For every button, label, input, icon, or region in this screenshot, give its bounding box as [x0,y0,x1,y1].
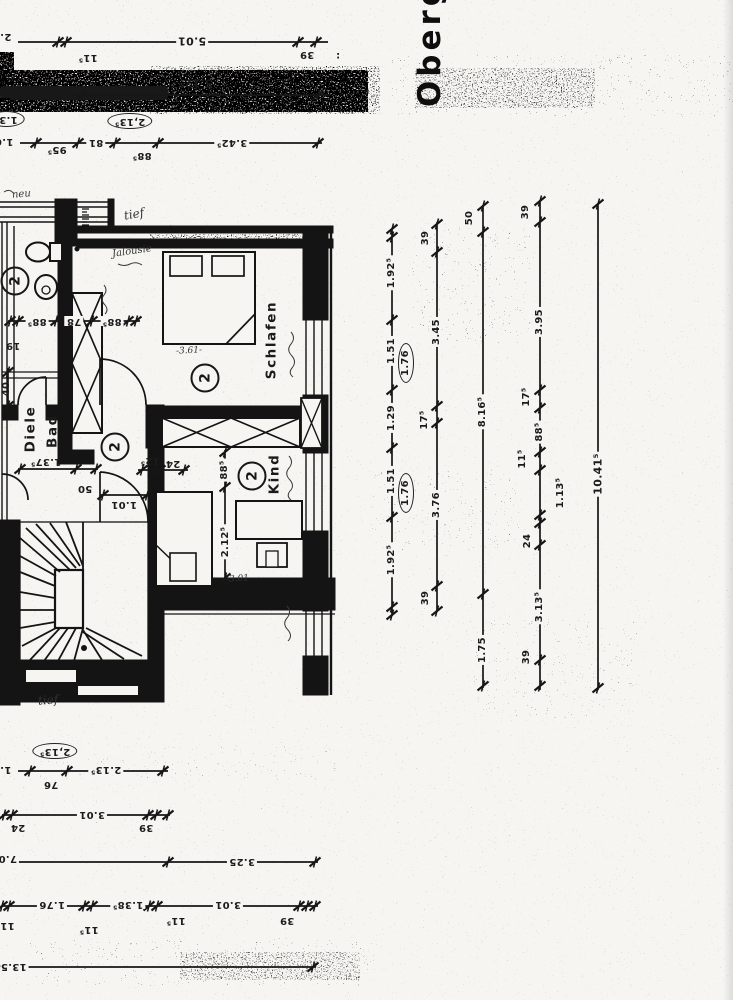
dim-label-circled: 2,13⁵ [33,743,78,759]
dim-label: 24 [11,822,26,832]
dim-label: 39 [139,822,154,832]
dim-label: 50 [78,483,93,493]
dim-label: 7.04 [0,853,19,863]
dim-label: 39 [521,205,531,220]
dim-label: 1.38⁵ [111,899,146,909]
dim-label: 2.7 [0,31,13,41]
dim-label: 17⁵ [522,387,532,406]
dim-label: 1.51 [387,336,397,366]
dim-label: 40 [2,382,12,397]
dim-label: 12⁵ [140,455,159,465]
dim-label: 8.16⁵ [478,395,488,430]
handwritten-note-kind-dim: -3.01- [226,574,253,586]
dim-label-circled: 1.76 [398,343,414,383]
dim-label: 5.01 [176,36,208,47]
room-symbol-kind: 2 [238,462,267,491]
dim-label: 1.76 [37,899,67,909]
handwritten-note-neu: neu [12,188,32,201]
dim-label-circled: 2,13⁵ [108,113,153,129]
chimney-shaft [72,293,102,433]
dim-label: 1.6 [0,136,15,146]
desk-kind [236,501,302,539]
dim-label: 95⁵ [47,144,66,154]
dim-label: 11⁵ [518,449,528,468]
dim-label: 88⁵ [535,420,545,443]
dim-label: 24 [166,458,181,468]
dim-label: 88⁵ [100,316,123,326]
dim-label: 1.92⁵ [387,543,397,578]
dim-label: 10.41⁵ [593,451,604,496]
handwritten-note-tief-bottom: tief [38,693,59,708]
handwritten-note-schlafen-dim: -3.61- [176,346,203,357]
room-label-kind: Kind [268,454,282,495]
page-title: Oberg [412,0,448,107]
room-label-bad: Bad [46,414,60,448]
dim-label: 3.76 [432,490,442,520]
dim-label: 2.12⁵ [221,525,231,560]
dim-label: 39 [522,650,532,665]
dim-label: 88⁵ [220,458,230,481]
room-symbol-schlafen: 2 [191,364,220,393]
dim-label: 78 [65,316,84,326]
dim-label: 11⁵ [79,924,98,934]
dim-label: 11⁵ [78,52,97,62]
dim-label: 3.01 [77,809,107,819]
scanned-floor-plan-page: 2.7 11⁵ 5.01 39 : 5.12⁵ 1.3⁵ 1.6 95⁵ 81 … [0,0,733,1000]
room-label-schlafen: Schlafen [265,301,279,380]
dim-label: 3.45 [432,317,442,347]
room-symbol-diele: 2 [101,433,130,462]
dim-label: 1.51 [387,466,397,496]
dim-label: 5.12⁵ [179,78,212,89]
room-symbol-bad: 2 [1,267,30,296]
dim-label: 1.37⁵ [31,456,62,466]
dim-label: 11⁵ [0,920,15,930]
dim-label: 1.75 [478,635,488,665]
toilet-tank [50,243,62,261]
dim-label: 3.95 [535,307,545,337]
dim-label: 39 [421,591,431,606]
dim-label: 3.25 [227,856,257,866]
dim-label: 3.42⁵ [215,137,250,147]
dim-label: 39 [280,915,295,925]
dim-label: : [336,50,340,60]
floor-plan-drawing [0,0,733,1000]
dim-label: 88⁵ [25,316,48,326]
dim-label: 13.54 [0,961,29,971]
dim-label-circled: 1.76 [398,473,414,513]
toilet-icon [26,243,50,262]
dim-label: 88⁵ [132,150,151,160]
dim-label: 1.01 [111,499,137,509]
dim-label: 11⁵ [166,915,185,925]
dim-label: 2.13⁵ [89,764,124,774]
dim-label: 24 [523,534,533,549]
dim-label: 3.01 [213,899,243,909]
dim-label: 3.13⁵ [535,590,545,625]
dim-label: 19 [6,340,21,350]
dim-label: 76 [44,779,59,789]
dim-label: 1.2 [0,764,13,774]
dim-label: 1.13⁵ [556,478,566,509]
room-label-diele: Diele [24,406,38,453]
dim-label: 39 [421,231,431,246]
dim-label: 1.29 [387,403,397,433]
scan-noise [0,0,733,1000]
dim-label: 17⁵ [420,410,430,429]
dim-label: 50 [465,211,475,226]
dim-label: 39 [300,49,315,59]
dim-label: 1.92⁵ [387,256,397,291]
dim-label: 81 [87,137,106,147]
